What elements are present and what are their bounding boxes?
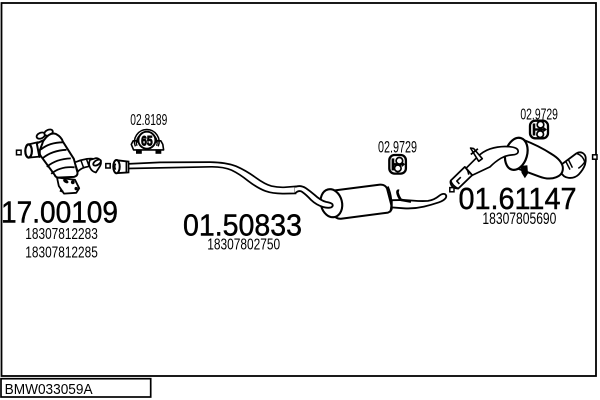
- svg-text:18307812283: 18307812283: [25, 226, 98, 243]
- svg-text:18307805690: 18307805690: [482, 210, 556, 228]
- svg-text:02.9729: 02.9729: [520, 106, 558, 123]
- svg-text:18307812285: 18307812285: [25, 244, 98, 261]
- svg-text:BMW033059A: BMW033059A: [5, 382, 93, 398]
- svg-text:02.8189: 02.8189: [130, 112, 167, 129]
- svg-text:18307802750: 18307802750: [207, 237, 280, 254]
- svg-text:02.9729: 02.9729: [378, 139, 417, 157]
- svg-text:65: 65: [141, 132, 153, 148]
- svg-text:17.00109: 17.00109: [1, 196, 118, 230]
